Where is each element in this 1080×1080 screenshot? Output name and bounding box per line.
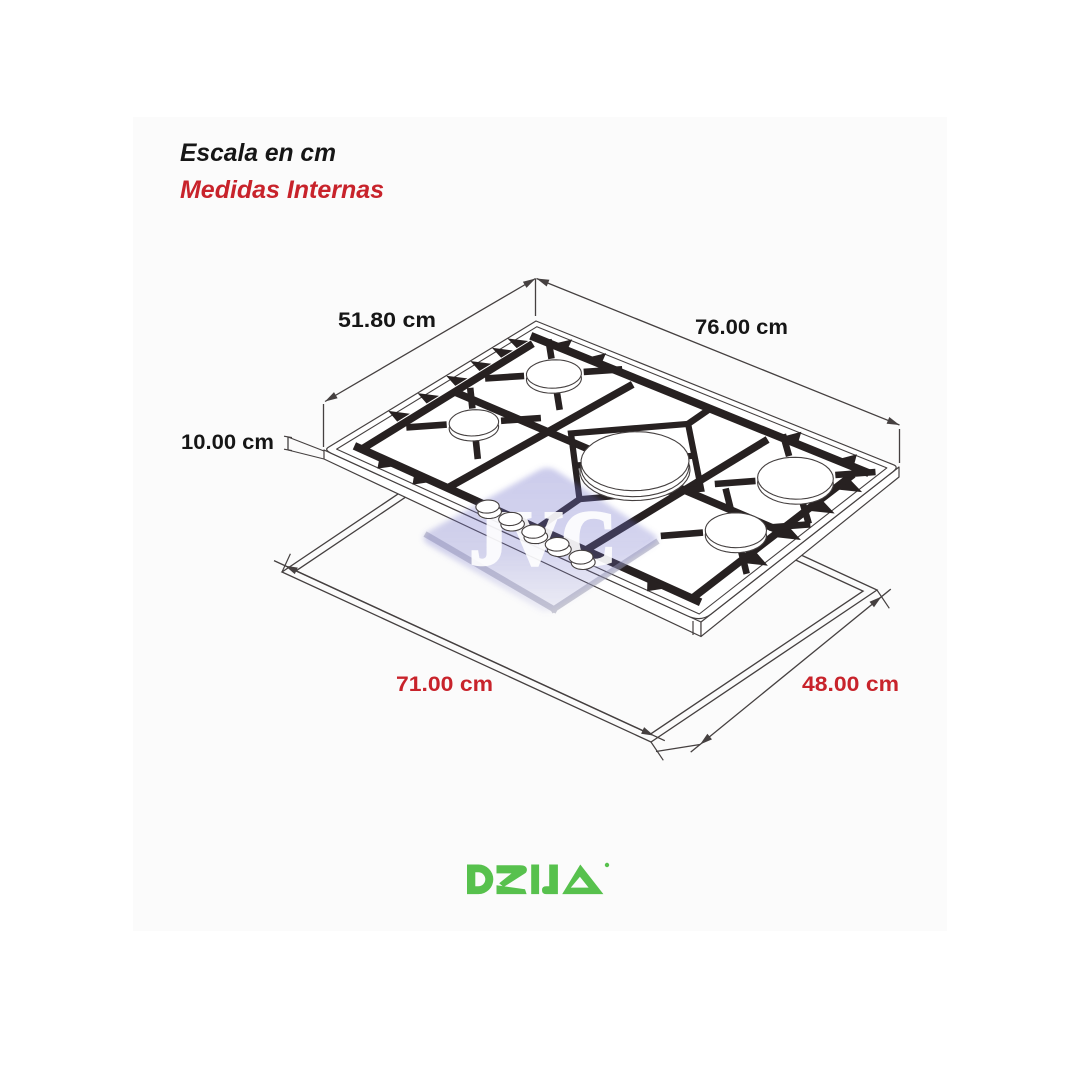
svg-text:51.80 cm: 51.80 cm — [338, 309, 436, 332]
svg-text:10.00 cm: 10.00 cm — [181, 431, 274, 454]
svg-text:48.00 cm: 48.00 cm — [802, 673, 899, 696]
svg-text:Escala en cm: Escala en cm — [180, 139, 336, 167]
svg-text:76.00 cm: 76.00 cm — [695, 316, 788, 339]
svg-text:Medidas Internas: Medidas Internas — [180, 176, 384, 204]
svg-text:71.00 cm: 71.00 cm — [396, 673, 493, 696]
